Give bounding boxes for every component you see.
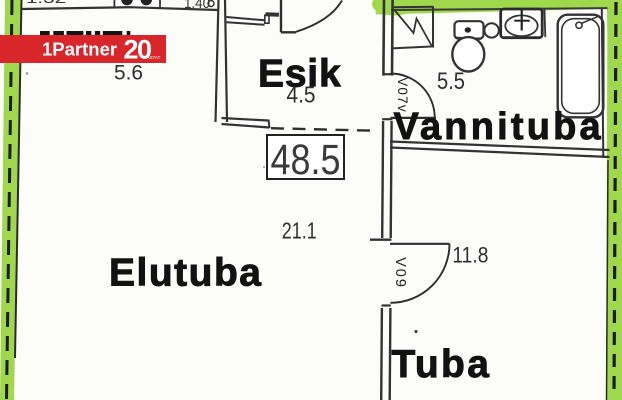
svg-text:1Partner: 1Partner — [42, 39, 117, 60]
svg-text:4.5: 4.5 — [287, 81, 316, 107]
svg-text:20: 20 — [124, 35, 152, 65]
svg-text:V09: V09 — [392, 257, 408, 289]
svg-text:11.8: 11.8 — [452, 243, 488, 268]
svg-text:Elutuba: Elutuba — [109, 252, 263, 295]
svg-text:1.40: 1.40 — [184, 0, 210, 12]
svg-text:Vannituba: Vannituba — [394, 106, 604, 148]
svg-text:AASTAT: AASTAT — [144, 55, 161, 60]
svg-text:5.5: 5.5 — [437, 68, 465, 95]
svg-text:48.5: 48.5 — [271, 137, 341, 184]
svg-text:1.32: 1.32 — [26, 0, 66, 6]
svg-text:21.1: 21.1 — [282, 218, 317, 244]
svg-text:Tuba: Tuba — [392, 343, 492, 386]
